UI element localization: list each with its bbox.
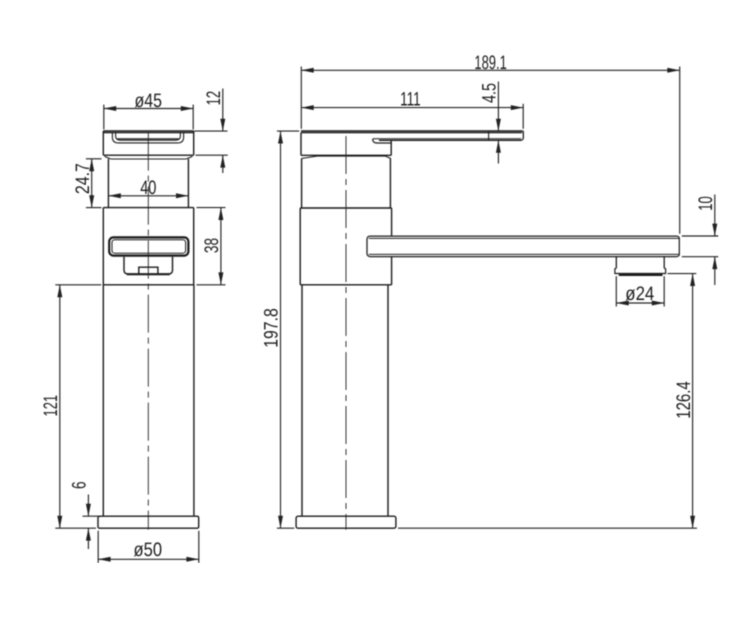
- svg-text:ø50: ø50: [134, 539, 163, 561]
- svg-text:40: 40: [140, 177, 156, 199]
- svg-text:4.5: 4.5: [479, 83, 501, 103]
- svg-text:ø45: ø45: [135, 90, 163, 112]
- svg-text:126.4: 126.4: [673, 381, 695, 419]
- svg-text:38: 38: [201, 238, 223, 253]
- svg-text:24.7: 24.7: [72, 163, 94, 194]
- svg-text:197.8: 197.8: [261, 308, 283, 348]
- svg-text:ø24: ø24: [625, 283, 654, 305]
- svg-text:6: 6: [69, 481, 91, 489]
- svg-text:111: 111: [400, 88, 421, 110]
- svg-text:121: 121: [40, 395, 62, 417]
- svg-text:189.1: 189.1: [474, 52, 507, 74]
- svg-text:10: 10: [695, 196, 717, 211]
- svg-text:12: 12: [203, 91, 225, 106]
